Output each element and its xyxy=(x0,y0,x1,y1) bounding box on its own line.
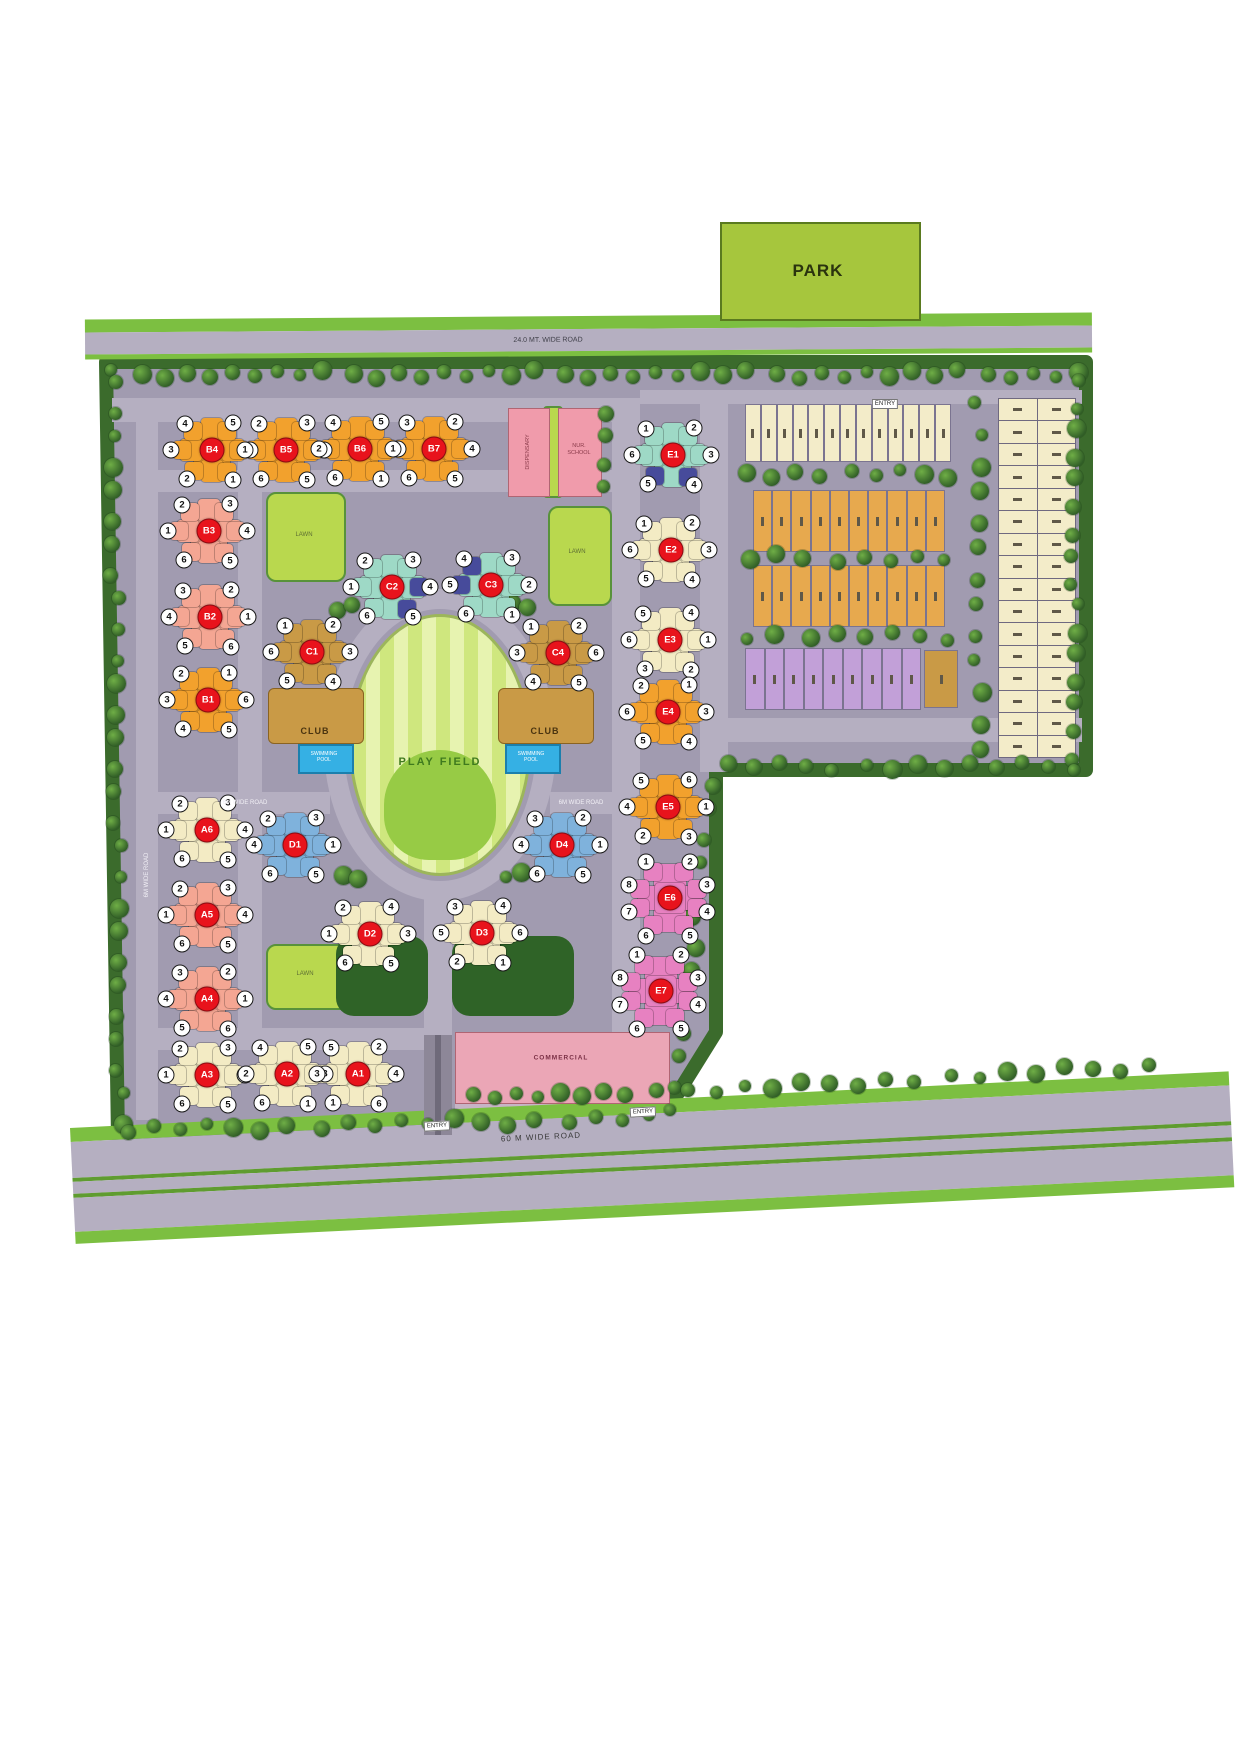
tree-icon xyxy=(1066,469,1083,486)
tower-number-E2-3[interactable]: 3 xyxy=(701,542,718,559)
tower-number-C1-6[interactable]: 6 xyxy=(263,644,280,661)
tower-number-D3-5[interactable]: 5 xyxy=(433,925,450,942)
tower-number-C1-1[interactable]: 1 xyxy=(277,618,294,635)
tree-icon xyxy=(972,458,991,477)
cluster-badge-B6[interactable]: B6 xyxy=(348,437,373,462)
plot-roof-mark xyxy=(896,592,899,601)
plot-roof-mark xyxy=(1013,655,1022,658)
tower-number-E7-6[interactable]: 6 xyxy=(629,1021,646,1038)
tower-number-E1-5[interactable]: 5 xyxy=(640,476,657,493)
tower-number-D4-2[interactable]: 2 xyxy=(575,810,592,827)
tower-number-E6-3[interactable]: 3 xyxy=(699,877,716,894)
tower-number-C4-5[interactable]: 5 xyxy=(571,675,588,692)
tree-icon xyxy=(368,370,385,387)
tower-number-E5-2[interactable]: 2 xyxy=(635,828,652,845)
tower-number-C2-5[interactable]: 5 xyxy=(405,609,422,626)
plot-roof-mark xyxy=(1052,431,1061,434)
cluster-badge-E5[interactable]: E5 xyxy=(656,795,681,820)
tree-icon xyxy=(202,369,218,385)
tower-number-B3-2[interactable]: 2 xyxy=(174,497,191,514)
tower-number-E4-3[interactable]: 3 xyxy=(698,704,715,721)
tree-icon xyxy=(349,870,367,888)
tower-number-B2-1[interactable]: 1 xyxy=(240,609,257,626)
tower-number-A1-1[interactable]: 1 xyxy=(325,1095,342,1112)
tower-number-C1-4[interactable]: 4 xyxy=(325,674,342,691)
cluster-badge-E7[interactable]: E7 xyxy=(649,979,674,1004)
tree-icon xyxy=(681,1083,695,1097)
cluster-badge-D2[interactable]: D2 xyxy=(358,922,383,947)
tree-icon xyxy=(861,366,873,378)
tree-icon xyxy=(802,629,820,647)
tower-number-E4-2[interactable]: 2 xyxy=(633,678,650,695)
tower-number-A3-6[interactable]: 6 xyxy=(174,1096,191,1113)
plot-cell xyxy=(999,601,1037,622)
plot-cell xyxy=(999,421,1037,442)
tower-number-E1-6[interactable]: 6 xyxy=(624,447,641,464)
cluster-badge-A6[interactable]: A6 xyxy=(195,818,220,843)
plot-roof-mark xyxy=(1052,655,1061,658)
tower-number-E2-5[interactable]: 5 xyxy=(638,571,655,588)
tower-number-D2-3[interactable]: 3 xyxy=(400,926,417,943)
plot-roof-mark xyxy=(1052,677,1061,680)
tower-number-E6-1[interactable]: 1 xyxy=(638,854,655,871)
plot-cell xyxy=(919,404,935,462)
plot-roof-mark xyxy=(857,517,860,526)
tree-icon xyxy=(989,760,1004,775)
tree-icon xyxy=(1027,367,1040,380)
tower-number-E1-1[interactable]: 1 xyxy=(638,421,655,438)
tower-number-A3-3[interactable]: 3 xyxy=(220,1040,237,1057)
lawn-label-3: LAWN xyxy=(296,971,313,977)
tower-number-A4-6[interactable]: 6 xyxy=(220,1021,237,1038)
tower-number-A2-5[interactable]: 5 xyxy=(300,1039,317,1056)
plot-roof-mark xyxy=(1013,745,1022,748)
tower-number-E6-2[interactable]: 2 xyxy=(682,854,699,871)
tower-number-D2-6[interactable]: 6 xyxy=(337,955,354,972)
tree-icon xyxy=(1067,674,1084,691)
cluster-badge-B2[interactable]: B2 xyxy=(198,605,223,630)
tower-number-D1-3[interactable]: 3 xyxy=(308,810,325,827)
tower-number-C2-4[interactable]: 4 xyxy=(422,579,439,596)
tower-number-E5-1[interactable]: 1 xyxy=(698,799,715,816)
tower-number-A5-4[interactable]: 4 xyxy=(237,907,254,924)
cluster-badge-C4[interactable]: C4 xyxy=(546,641,571,666)
tower-number-A1-5[interactable]: 5 xyxy=(323,1040,340,1057)
tower-number-E7-8[interactable]: 8 xyxy=(612,970,629,987)
tower-number-E1-3[interactable]: 3 xyxy=(703,447,720,464)
plot-roof-mark xyxy=(910,429,913,438)
plot-roof-mark xyxy=(857,592,860,601)
tower-number-A4-4[interactable]: 4 xyxy=(158,991,175,1008)
swimming-pool-west-label: SWIMMING POOL xyxy=(304,751,344,763)
cluster-badge-D3[interactable]: D3 xyxy=(470,921,495,946)
plot-roof-mark xyxy=(915,592,918,601)
cluster-badge-E3[interactable]: E3 xyxy=(658,628,683,653)
plot-roof-mark xyxy=(1013,700,1022,703)
tower-number-E2-1[interactable]: 1 xyxy=(636,516,653,533)
tower-number-B2-4[interactable]: 4 xyxy=(161,609,178,626)
tower-number-A2-4[interactable]: 4 xyxy=(252,1040,269,1057)
tower-number-B6-1[interactable]: 1 xyxy=(373,471,390,488)
cluster-badge-A4[interactable]: A4 xyxy=(195,987,220,1012)
cluster-badge-E2[interactable]: E2 xyxy=(659,538,684,563)
tower-number-E6-8[interactable]: 8 xyxy=(621,877,638,894)
plot-roof-mark xyxy=(780,592,783,601)
tower-number-C4-2[interactable]: 2 xyxy=(571,618,588,635)
tower-number-B4-4[interactable]: 4 xyxy=(177,416,194,433)
plot-cell xyxy=(753,565,772,627)
tower-number-D1-5[interactable]: 5 xyxy=(308,867,325,884)
tower-number-D1-6[interactable]: 6 xyxy=(262,866,279,883)
tower-number-A6-6[interactable]: 6 xyxy=(174,851,191,868)
tower-number-A2-6[interactable]: 6 xyxy=(254,1095,271,1112)
tower-number-D2-5[interactable]: 5 xyxy=(383,956,400,973)
tower-number-A2-2[interactable]: 2 xyxy=(238,1066,255,1083)
tower-number-E7-5[interactable]: 5 xyxy=(673,1021,690,1038)
cluster-badge-B7[interactable]: B7 xyxy=(422,437,447,462)
tree-icon xyxy=(1004,371,1018,385)
tower-number-A1-3[interactable]: 3 xyxy=(309,1066,326,1083)
tower-number-A6-1[interactable]: 1 xyxy=(158,822,175,839)
tree-icon xyxy=(109,1009,124,1024)
tower-number-C4-6[interactable]: 6 xyxy=(588,645,605,662)
cluster-badge-D4[interactable]: D4 xyxy=(550,833,575,858)
tower-number-B1-4[interactable]: 4 xyxy=(175,721,192,738)
tower-number-E6-7[interactable]: 7 xyxy=(621,904,638,921)
tree-icon xyxy=(110,899,129,918)
entry-label-north: ENTRY xyxy=(872,399,898,409)
tower-number-E3-1[interactable]: 1 xyxy=(700,632,717,649)
tower-number-B4-1[interactable]: 1 xyxy=(225,472,242,489)
plot-roof-mark xyxy=(800,592,803,601)
plot-cell xyxy=(924,650,958,708)
plot-roof-mark xyxy=(934,592,937,601)
tower-number-B5-1[interactable]: 1 xyxy=(237,442,254,459)
tower-number-E3-4[interactable]: 4 xyxy=(683,605,700,622)
tower-number-A4-1[interactable]: 1 xyxy=(237,991,254,1008)
tower-number-A5-2[interactable]: 2 xyxy=(172,881,189,898)
tower-number-C4-4[interactable]: 4 xyxy=(525,674,542,691)
tower-number-D3-6[interactable]: 6 xyxy=(512,925,529,942)
swimming-pool-east-label: SWIMMING POOL xyxy=(511,751,551,763)
tower-number-D2-1[interactable]: 1 xyxy=(321,926,338,943)
tower-number-D3-3[interactable]: 3 xyxy=(447,899,464,916)
tree-icon xyxy=(225,365,240,380)
plot-roof-mark xyxy=(1013,543,1022,546)
tower-number-B3-3[interactable]: 3 xyxy=(222,496,239,513)
plot-cell xyxy=(999,668,1037,689)
tower-number-B1-3[interactable]: 3 xyxy=(159,692,176,709)
tree-icon xyxy=(941,634,954,647)
plot-cell xyxy=(999,736,1037,757)
tower-number-D3-2[interactable]: 2 xyxy=(449,954,466,971)
tree-icon xyxy=(976,429,988,441)
tower-number-B7-3[interactable]: 3 xyxy=(399,415,416,432)
play-field-label: PLAY FIELD xyxy=(399,756,482,768)
tower-number-E4-5[interactable]: 5 xyxy=(635,733,652,750)
plot-row-4b xyxy=(924,650,958,708)
tower-number-A5-5[interactable]: 5 xyxy=(220,937,237,954)
tower-number-E4-6[interactable]: 6 xyxy=(619,704,636,721)
cluster-badge-B4[interactable]: B4 xyxy=(200,438,225,463)
tower-number-C2-2[interactable]: 2 xyxy=(357,553,374,570)
tower-number-E2-4[interactable]: 4 xyxy=(684,572,701,589)
tower-number-B4-5[interactable]: 5 xyxy=(225,415,242,432)
plot-roof-mark xyxy=(1052,565,1061,568)
tower-number-E5-3[interactable]: 3 xyxy=(681,829,698,846)
cluster-badge-A1[interactable]: A1 xyxy=(346,1062,371,1087)
tower-number-B5-2[interactable]: 2 xyxy=(251,416,268,433)
tower-number-C4-3[interactable]: 3 xyxy=(509,645,526,662)
tower-number-B6-2[interactable]: 2 xyxy=(311,441,328,458)
cluster-badge-A5[interactable]: A5 xyxy=(195,903,220,928)
tower-number-D4-4[interactable]: 4 xyxy=(513,837,530,854)
tower-number-E3-3[interactable]: 3 xyxy=(637,661,654,678)
tree-icon xyxy=(772,755,787,770)
tree-icon xyxy=(525,361,543,379)
cluster-badge-E6[interactable]: E6 xyxy=(658,886,683,911)
tower-number-B1-5[interactable]: 5 xyxy=(221,722,238,739)
tower-number-E1-2[interactable]: 2 xyxy=(686,420,703,437)
tower-number-B7-2[interactable]: 2 xyxy=(447,414,464,431)
plot-roof-mark xyxy=(1013,588,1022,591)
tower-number-E6-5[interactable]: 5 xyxy=(682,928,699,945)
tower-number-E7-2[interactable]: 2 xyxy=(673,947,690,964)
tower-number-B7-1[interactable]: 1 xyxy=(385,441,402,458)
tree-icon xyxy=(970,573,985,588)
plot-roof-mark xyxy=(1013,565,1022,568)
tree-icon xyxy=(179,365,196,382)
tower-number-B4-2[interactable]: 2 xyxy=(179,471,196,488)
tree-icon xyxy=(907,1075,921,1089)
tower-number-B1-1[interactable]: 1 xyxy=(221,665,238,682)
tower-number-C3-4[interactable]: 4 xyxy=(456,551,473,568)
tower-number-A3-5[interactable]: 5 xyxy=(220,1097,237,1114)
tree-icon xyxy=(345,365,363,383)
tower-number-B6-4[interactable]: 4 xyxy=(325,415,342,432)
tower-number-D4-5[interactable]: 5 xyxy=(575,867,592,884)
cluster-badge-B5[interactable]: B5 xyxy=(274,438,299,463)
tree-icon xyxy=(460,370,473,383)
tree-icon xyxy=(626,370,640,384)
tower-number-D4-3[interactable]: 3 xyxy=(527,811,544,828)
tree-icon xyxy=(815,366,829,380)
tower-number-C1-2[interactable]: 2 xyxy=(325,617,342,634)
tower-number-B4-3[interactable]: 3 xyxy=(163,442,180,459)
tower-number-C4-1[interactable]: 1 xyxy=(523,619,540,636)
tree-icon xyxy=(720,755,737,772)
tower-number-B2-3[interactable]: 3 xyxy=(175,583,192,600)
tower-number-A5-6[interactable]: 6 xyxy=(174,936,191,953)
cluster-badge-B1[interactable]: B1 xyxy=(196,688,221,713)
tower-number-B1-2[interactable]: 2 xyxy=(173,666,190,683)
tower-number-C2-6[interactable]: 6 xyxy=(359,608,376,625)
plot-roof-mark xyxy=(862,429,865,438)
tower-number-B6-5[interactable]: 5 xyxy=(373,414,390,431)
cluster-badge-A3[interactable]: A3 xyxy=(195,1063,220,1088)
tower-number-B3-1[interactable]: 1 xyxy=(160,523,177,540)
plot-roof-mark xyxy=(1013,610,1022,613)
tree-icon xyxy=(825,764,838,777)
plot-cell xyxy=(777,404,793,462)
plot-roof-mark xyxy=(767,429,770,438)
tower-number-C3-1[interactable]: 1 xyxy=(504,607,521,624)
tower-number-E6-4[interactable]: 4 xyxy=(699,904,716,921)
tower-number-E4-1[interactable]: 1 xyxy=(681,677,698,694)
cluster-badge-A2[interactable]: A2 xyxy=(275,1062,300,1087)
tower-number-E4-4[interactable]: 4 xyxy=(681,734,698,751)
tower-number-B2-2[interactable]: 2 xyxy=(223,582,240,599)
tower-number-A1-2[interactable]: 2 xyxy=(371,1039,388,1056)
dispensary-label: DISPENSARY xyxy=(525,434,531,469)
plot-cell xyxy=(745,648,765,710)
tower-number-B3-6[interactable]: 6 xyxy=(176,552,193,569)
tree-icon xyxy=(765,625,784,644)
tree-icon xyxy=(672,370,684,382)
tree-icon xyxy=(110,922,128,940)
tree-icon xyxy=(595,1083,612,1100)
plot-row-4 xyxy=(745,648,921,710)
plot-roof-mark xyxy=(1052,722,1061,725)
plot-cell xyxy=(999,646,1037,667)
tower-number-A6-2[interactable]: 2 xyxy=(172,796,189,813)
tower-number-E3-5[interactable]: 5 xyxy=(635,606,652,623)
tower-number-A2-1[interactable]: 1 xyxy=(300,1096,317,1113)
plot-cell xyxy=(926,565,945,627)
tower-number-E5-6[interactable]: 6 xyxy=(681,772,698,789)
tree-icon xyxy=(472,1113,490,1131)
park-label: PARK xyxy=(793,261,844,281)
tree-icon xyxy=(112,623,125,636)
tower-number-D2-4[interactable]: 4 xyxy=(383,899,400,916)
plot-cell xyxy=(784,648,804,710)
tower-number-B2-5[interactable]: 5 xyxy=(177,638,194,655)
tower-number-C3-5[interactable]: 5 xyxy=(442,577,459,594)
cluster-badge-D1[interactable]: D1 xyxy=(283,833,308,858)
tower-number-B7-5[interactable]: 5 xyxy=(447,471,464,488)
tower-number-E5-5[interactable]: 5 xyxy=(633,773,650,790)
plot-roof-mark xyxy=(780,517,783,526)
tower-number-E1-4[interactable]: 4 xyxy=(686,477,703,494)
tree-icon xyxy=(483,365,495,377)
tower-number-A3-1[interactable]: 1 xyxy=(158,1067,175,1084)
cluster-badge-B3[interactable]: B3 xyxy=(197,519,222,544)
tower-number-E6-6[interactable]: 6 xyxy=(638,928,655,945)
tower-number-E7-4[interactable]: 4 xyxy=(690,997,707,1014)
tower-number-C2-1[interactable]: 1 xyxy=(343,579,360,596)
tower-number-D1-1[interactable]: 1 xyxy=(325,837,342,854)
tower-number-E7-3[interactable]: 3 xyxy=(690,970,707,987)
tower-number-B7-4[interactable]: 4 xyxy=(464,441,481,458)
plot-cell xyxy=(999,713,1037,734)
cluster-badge-C2[interactable]: C2 xyxy=(380,575,405,600)
plot-cell xyxy=(999,511,1037,532)
tree-icon xyxy=(115,839,128,852)
tower-number-A4-3[interactable]: 3 xyxy=(172,965,189,982)
plot-roof-mark xyxy=(878,429,881,438)
cluster-badge-C3[interactable]: C3 xyxy=(479,573,504,598)
tower-number-B3-5[interactable]: 5 xyxy=(222,553,239,570)
tower-number-B7-6[interactable]: 6 xyxy=(401,470,418,487)
tree-icon xyxy=(705,778,721,794)
tower-number-E5-4[interactable]: 4 xyxy=(619,799,636,816)
tower-number-D4-1[interactable]: 1 xyxy=(592,837,609,854)
tower-number-A4-5[interactable]: 5 xyxy=(174,1020,191,1037)
tower-number-D1-2[interactable]: 2 xyxy=(260,811,277,828)
tower-number-C2-3[interactable]: 3 xyxy=(405,552,422,569)
tower-number-D4-6[interactable]: 6 xyxy=(529,866,546,883)
tower-number-B2-6[interactable]: 6 xyxy=(223,639,240,656)
tree-icon xyxy=(968,396,981,409)
tower-number-C3-3[interactable]: 3 xyxy=(504,550,521,567)
tower-number-A4-2[interactable]: 2 xyxy=(220,964,237,981)
tree-icon xyxy=(936,760,953,777)
tower-number-B5-3[interactable]: 3 xyxy=(299,415,316,432)
tree-icon xyxy=(112,655,124,667)
tree-icon xyxy=(880,367,899,386)
tower-number-C3-2[interactable]: 2 xyxy=(521,577,538,594)
plot-roof-mark xyxy=(1052,408,1061,411)
plot-roof-mark xyxy=(1013,633,1022,636)
cluster-badge-E1[interactable]: E1 xyxy=(661,443,686,468)
tower-number-A3-2[interactable]: 2 xyxy=(172,1041,189,1058)
plot-roof-mark xyxy=(799,429,802,438)
tower-number-D1-4[interactable]: 4 xyxy=(246,837,263,854)
tower-number-E2-2[interactable]: 2 xyxy=(684,515,701,532)
plot-cell xyxy=(907,565,926,627)
commercial-label: COMMERCIAL xyxy=(534,1055,589,1062)
cluster-badge-C1[interactable]: C1 xyxy=(300,640,325,665)
tower-number-B5-5[interactable]: 5 xyxy=(299,472,316,489)
plot-cell xyxy=(843,648,863,710)
tower-number-A1-4[interactable]: 4 xyxy=(388,1066,405,1083)
tree-icon xyxy=(945,1069,958,1082)
tower-number-A6-5[interactable]: 5 xyxy=(220,852,237,869)
tower-number-B5-6[interactable]: 6 xyxy=(253,471,270,488)
plot-roof-mark xyxy=(1013,677,1022,680)
tower-number-C3-6[interactable]: 6 xyxy=(458,606,475,623)
plot-cell xyxy=(999,579,1037,600)
cluster-badge-E4[interactable]: E4 xyxy=(656,700,681,725)
tower-number-B6-6[interactable]: 6 xyxy=(327,470,344,487)
tower-number-D3-4[interactable]: 4 xyxy=(495,898,512,915)
tower-number-C1-3[interactable]: 3 xyxy=(342,644,359,661)
plot-cell xyxy=(868,490,887,552)
plot-roof-mark xyxy=(783,429,786,438)
tower-number-A5-3[interactable]: 3 xyxy=(220,880,237,897)
tower-number-B1-6[interactable]: 6 xyxy=(238,692,255,709)
tower-number-C1-5[interactable]: 5 xyxy=(279,673,296,690)
plot-roof-mark xyxy=(1013,520,1022,523)
tower-number-D3-1[interactable]: 1 xyxy=(495,955,512,972)
tower-number-A5-1[interactable]: 1 xyxy=(158,907,175,924)
entry-label-south-main: ENTRY xyxy=(424,1120,451,1131)
tower-number-E2-6[interactable]: 6 xyxy=(622,542,639,559)
tower-number-E7-7[interactable]: 7 xyxy=(612,997,629,1014)
tower-number-B3-4[interactable]: 4 xyxy=(239,523,256,540)
plot-roof-mark xyxy=(851,675,854,684)
tower-number-E3-6[interactable]: 6 xyxy=(621,632,638,649)
tower-number-A1-6[interactable]: 6 xyxy=(371,1096,388,1113)
plot-roof-mark xyxy=(1013,431,1022,434)
plot-cell xyxy=(999,444,1037,465)
tree-icon xyxy=(691,362,710,381)
tree-icon xyxy=(664,1104,676,1116)
tower-number-D2-2[interactable]: 2 xyxy=(335,900,352,917)
tree-icon xyxy=(938,554,950,566)
tower-number-E7-1[interactable]: 1 xyxy=(629,947,646,964)
plot-roof-mark xyxy=(1013,453,1022,456)
